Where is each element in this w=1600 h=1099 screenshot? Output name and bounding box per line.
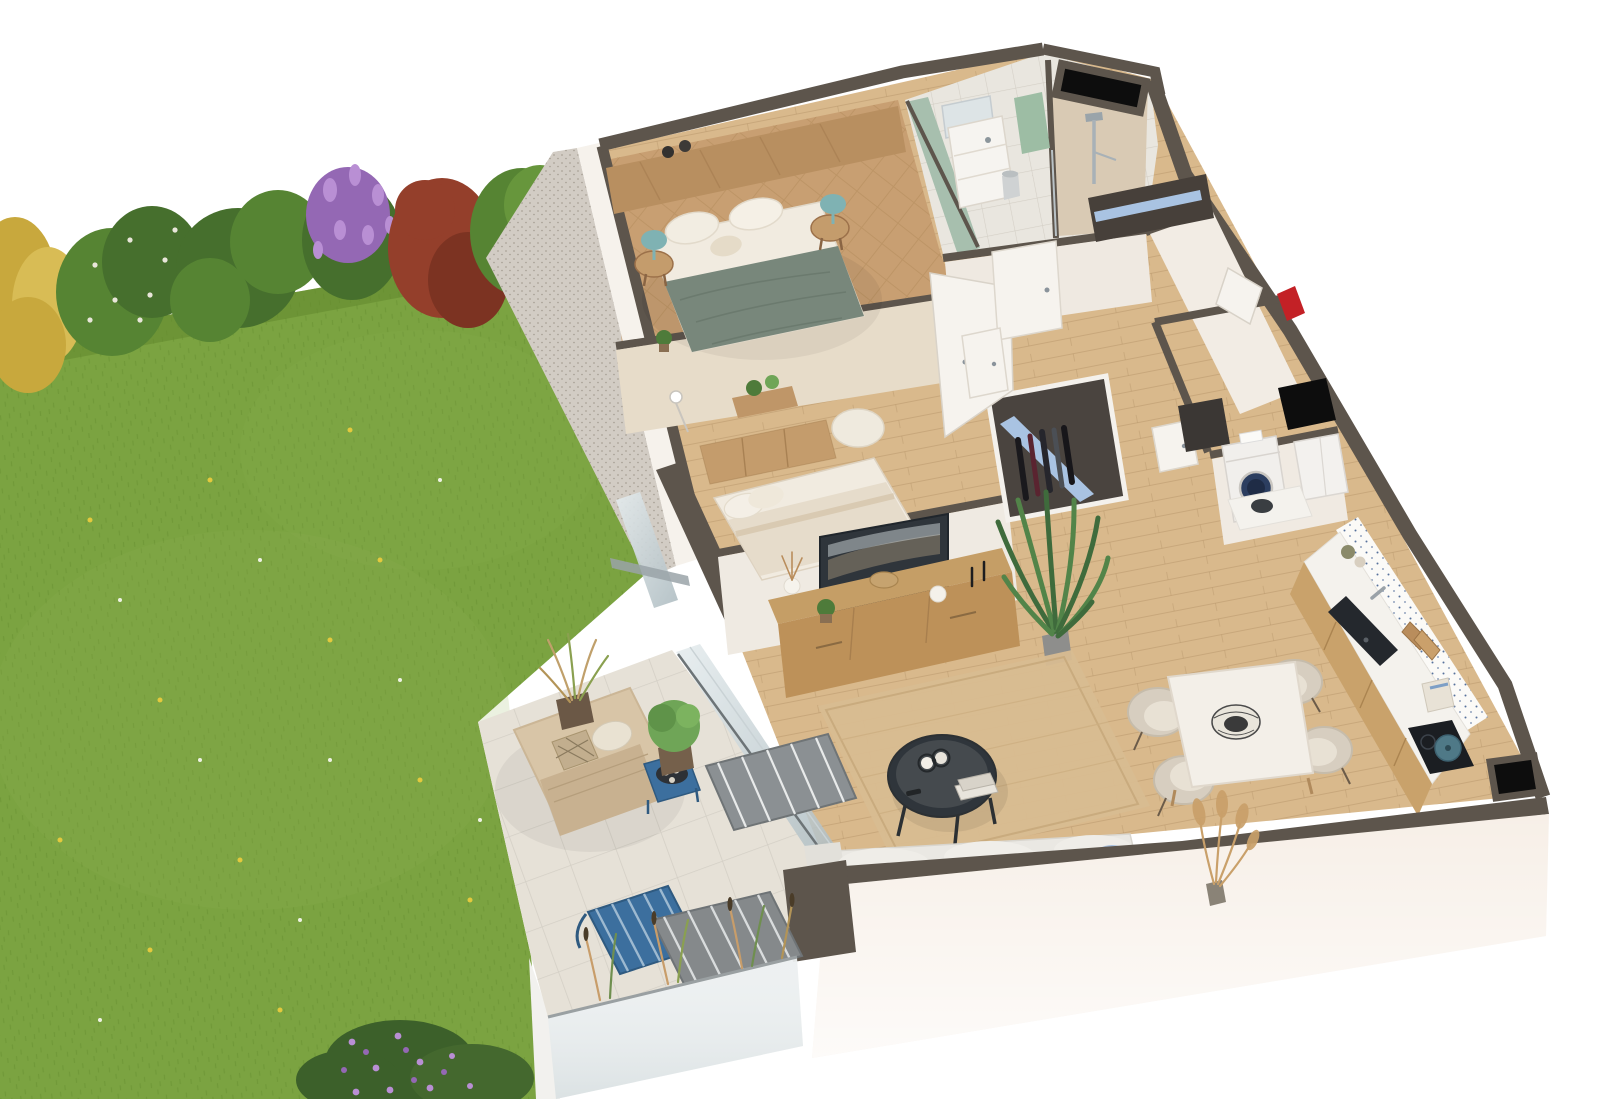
white-orb-vase bbox=[930, 586, 946, 602]
candle-jar bbox=[662, 146, 674, 158]
toaster bbox=[1422, 678, 1454, 712]
wicker-bowl bbox=[870, 572, 898, 588]
wire-basket bbox=[1212, 705, 1260, 739]
storage-nook bbox=[1178, 398, 1230, 452]
faucet bbox=[985, 137, 991, 143]
floorplan-svg bbox=[0, 0, 1600, 1099]
se-corner-duct bbox=[1490, 756, 1540, 798]
candle bbox=[921, 757, 933, 769]
candle-jar bbox=[679, 140, 691, 152]
dark-bowl bbox=[1251, 499, 1273, 513]
hall-bath-door bbox=[992, 241, 1062, 340]
waste-bin bbox=[1002, 171, 1020, 201]
lawn-light-patch bbox=[0, 530, 510, 910]
candle bbox=[935, 752, 947, 764]
hall-wardrobe bbox=[988, 376, 1126, 520]
pouf bbox=[832, 409, 884, 447]
hedge-lilac-shrub bbox=[302, 164, 402, 300]
bed2-door bbox=[962, 328, 1008, 398]
floorplan-render bbox=[0, 0, 1600, 1099]
